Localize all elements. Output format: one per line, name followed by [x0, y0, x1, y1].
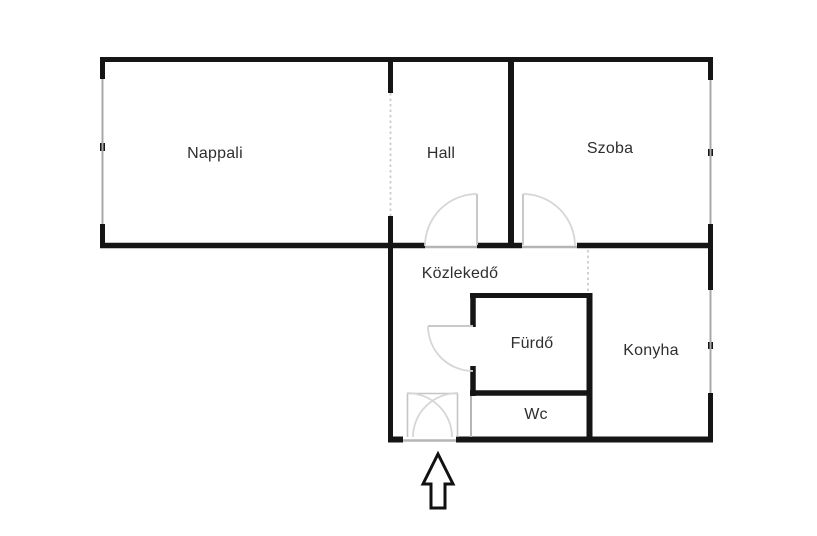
dashed-openings [391, 93, 589, 293]
window-lines [103, 79, 711, 393]
room-label-szoba: Szoba [587, 140, 633, 158]
doors [407, 194, 575, 437]
room-label-wc: Wc [524, 406, 548, 424]
room-label-nappali: Nappali [187, 145, 243, 163]
room-label-furdo: Fürdő [511, 335, 554, 353]
floor-plan: Nappali Hall Szoba Közlekedő Fürdő Konyh… [0, 0, 817, 536]
floor-plan-drawing [0, 0, 817, 536]
room-label-kozlekedo: Közlekedő [422, 265, 499, 283]
walls [100, 57, 713, 442]
room-label-hall: Hall [427, 145, 455, 163]
entrance-arrow-icon [423, 454, 453, 508]
room-label-konyha: Konyha [623, 342, 678, 360]
